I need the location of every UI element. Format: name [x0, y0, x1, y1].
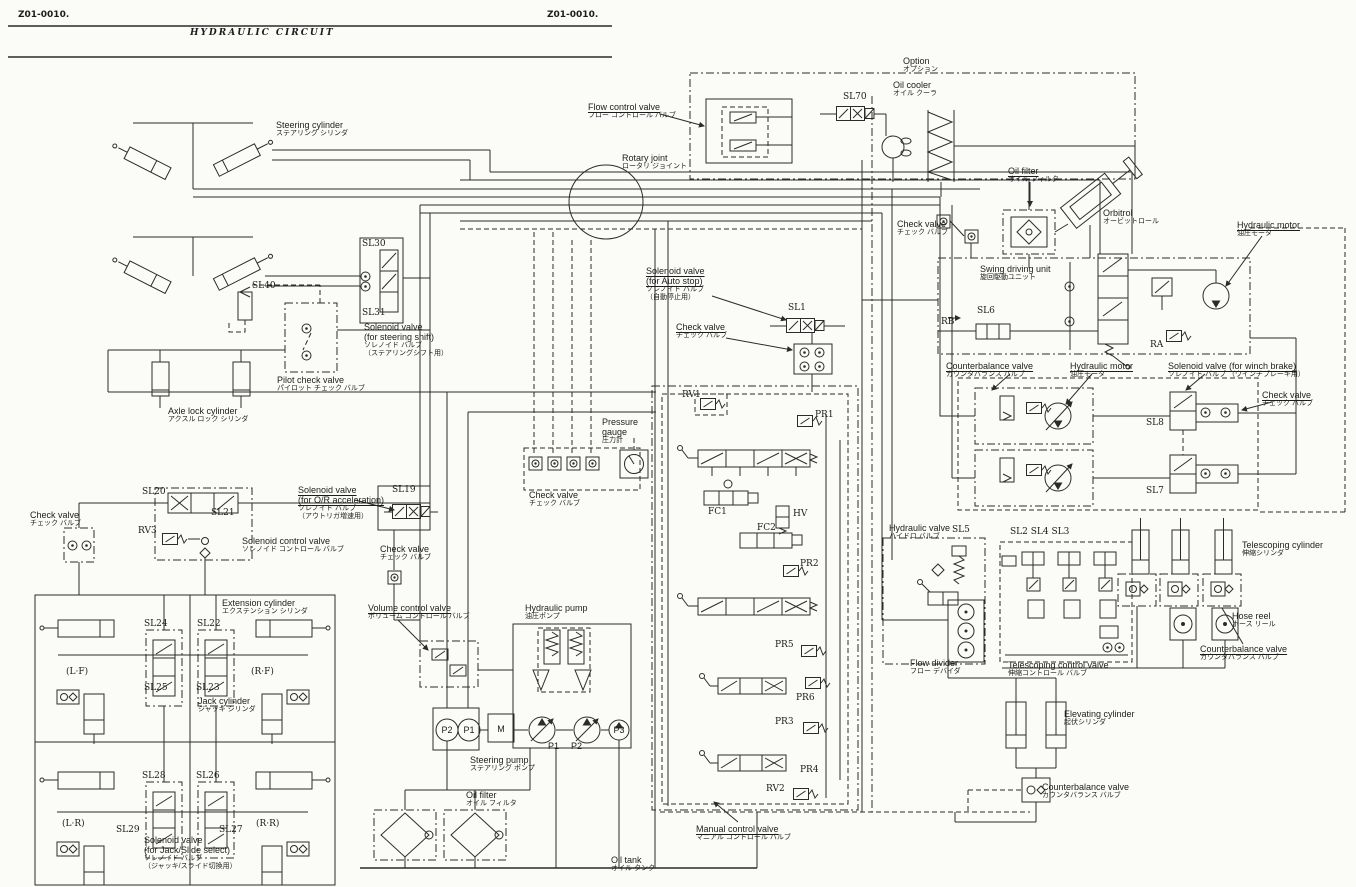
jack-cylinder-label: Jack cylinderジャッキ シリンダ — [198, 696, 256, 714]
hydraulic-circuit-page: Z01-0010.Z01-0010.HYDRAULIC CIRCUITSteer… — [0, 0, 1356, 887]
sl40-label: SL40 — [252, 281, 276, 291]
check-valve-top-label: Check valveチェック バルブ — [897, 219, 948, 237]
steering-cylinders — [110, 123, 276, 293]
spool-row-4 — [700, 751, 787, 772]
check-valve-left-label: Check valveチェック バルブ — [30, 510, 81, 528]
counterbalance-right-label: Counterbalance valveカウンタバランス バルブ — [1200, 644, 1287, 662]
sl23-label: SL23 — [196, 683, 220, 693]
volume-control-valve-label: Volume control valveボリューム コントロール バルブ — [368, 603, 470, 621]
solenoid-auto-stop-label: Solenoid valve(for Auto stop)ソレノイド バルブ（自… — [646, 266, 705, 302]
solenoid-jack-slide-label: Solenoid valve(for Jack/Slide select)ソレノ… — [144, 835, 237, 871]
check-valve-mid-label: Check valveチェック バルブ — [676, 322, 727, 340]
solenoid-winch-label: Solenoid valve (for winch brake)ソレノイド バル… — [1168, 361, 1305, 379]
oil-tank-label: Oil tankオイル タンク — [611, 855, 655, 873]
sl20-label: SL20 — [142, 487, 166, 497]
rv2-label: RV2 — [766, 784, 785, 794]
spool-row-2 — [678, 594, 818, 616]
sl2-sl4-sl3-label: SL2 SL4 SL3 — [1010, 527, 1069, 537]
sl21-label: SL21 — [211, 508, 235, 518]
manual-control-valve-bank — [652, 386, 858, 810]
sl8-label: SL8 — [1146, 418, 1164, 428]
hydraulic-valve-label: Hydraulic valveハイドロ バルブ — [889, 523, 950, 541]
sl28-label: SL28 — [142, 771, 166, 781]
check-valve-right-label: Check valveチェック バルブ — [1262, 390, 1313, 408]
sl5-label: SL5 — [952, 525, 970, 535]
extension-cylinder-label: Extension cylinderエクステンション シリンダ — [222, 598, 308, 616]
counterbalance-top-label: Counterbalance valveカウンタバランス バルブ — [946, 361, 1033, 379]
sl19-label: SL19 — [392, 485, 416, 495]
manual-control-valve-label: Manual control valveマニアル コントロール バルブ — [696, 824, 791, 842]
sl1-auto-stop-valve — [770, 319, 845, 393]
pr5-label: PR5 — [775, 640, 794, 650]
spool-row-1 — [678, 446, 818, 477]
solenoid-or-accel-label: Solenoid valve(for O/R acceleration)ソレノイ… — [298, 485, 384, 521]
pr4-label: PR4 — [800, 765, 819, 775]
telescoping-control-valve — [1000, 542, 1132, 662]
solenoid-steering-shift-label: Solenoid valve(for steering shift)ソレノイド … — [364, 322, 448, 358]
schematic-linework — [0, 0, 1356, 887]
p2-pump-label: P2 — [571, 741, 582, 751]
swing-driving-unit — [862, 225, 1250, 369]
hose-reel-label: Hose reelホース リール — [1232, 611, 1276, 629]
pilot-check-valve-label: Pilot check valveパイロット チェック バルブ — [277, 375, 365, 393]
oil-filter-top — [1003, 180, 1055, 268]
fc2-label: FC2 — [757, 523, 776, 533]
rotary-joint-label: Rotary jointロータリ ジョイント — [622, 153, 687, 171]
ra-label: RA — [1150, 340, 1163, 350]
option-label: Optionオプション — [903, 56, 938, 74]
rotary-joint — [569, 165, 643, 239]
steering-pump-unit — [433, 708, 514, 790]
fc1-label: FC1 — [708, 507, 727, 517]
elevating-cylinder-label: Elevating cylinder起伏シリンダ — [1064, 709, 1135, 727]
pr2-label: PR2 — [800, 559, 819, 569]
oil-cooler-label: Oil coolerオイル クーラ — [893, 80, 937, 98]
page-title: HYDRAULIC CIRCUIT — [190, 28, 335, 38]
p3-pump-label: P3 — [613, 725, 624, 735]
check-valve-gauge-label: Check valveチェック バルブ — [529, 490, 580, 508]
spool-row-3 — [700, 674, 787, 695]
sl40-valve — [229, 287, 252, 332]
oil-filter-bottom-label: Oil filterオイル フィルタ — [466, 790, 517, 808]
steering-pump-label: Steering pumpステアリング ポンプ — [470, 755, 535, 773]
telescoping-control-valve-label: Telescoping control valve伸縮コントロール バルブ — [1008, 660, 1109, 678]
flow-divider-label: Flow dividerフロー デバイダ — [910, 658, 961, 676]
doc-no-left: Z01-0010. — [18, 10, 69, 20]
orbitrol-label: Orbitrolオービットロール — [1103, 208, 1159, 226]
lf-label: (L·F) — [66, 667, 88, 677]
sl1-label: SL1 — [788, 303, 806, 313]
lr-label: (L·R) — [62, 819, 85, 829]
rr-label: (R·R) — [256, 819, 279, 829]
flow-control-valve-label: Flow control valveフロー コントロール バルブ — [588, 102, 676, 120]
pr1-label: PR1 — [815, 410, 834, 420]
pr3-label: PR3 — [775, 717, 794, 727]
steering-cylinder-label: Steering cylinderステアリング シリンダ — [276, 120, 348, 138]
sl27-label: SL27 — [219, 825, 243, 835]
doc-no-right: Z01-0010. — [547, 10, 598, 20]
axle-lock-cylinder-label: Axle lock cylinderアクスル ロック シリンダ — [168, 406, 248, 424]
sl7-label: SL7 — [1146, 486, 1164, 496]
axle-lock-cylinders — [108, 350, 285, 408]
oil-filter-top-label: Oil filterオイル フィルタ — [1008, 166, 1059, 184]
sl29-label: SL29 — [116, 825, 140, 835]
sl6-label: SL6 — [977, 306, 995, 316]
hydraulic-pump-label: Hydraulic pump油圧ポンプ — [525, 603, 588, 621]
rv1-label: RV1 — [682, 390, 701, 400]
m-label: M — [497, 724, 505, 734]
sl31-label: SL31 — [362, 308, 386, 318]
check-valve-sl19-label: Check valveチェック バルブ — [380, 544, 431, 562]
volume-control-valve — [420, 641, 513, 687]
steering-shift-valve — [265, 213, 430, 323]
hydraulic-motor-top-label: Hydraulic motor油圧モータ — [1237, 220, 1300, 238]
p2-steering-label: P2 — [441, 725, 452, 735]
pressure-gauge-check-manifold — [524, 232, 648, 490]
piping — [108, 96, 1345, 868]
p1-pump-label: P1 — [548, 741, 559, 751]
flow-divider-hydraulic-valve — [882, 538, 985, 664]
sl25-label: SL25 — [144, 683, 168, 693]
counterbalance-bottom-label: Counterbalance valveカウンタバランス バルブ — [1042, 782, 1129, 800]
sl26-label: SL26 — [196, 771, 220, 781]
telescoping-cylinder-label: Telescoping cylinder伸縮シリンダ — [1242, 540, 1323, 558]
hv-label: HV — [793, 509, 807, 519]
rf-label: (R·F) — [251, 667, 274, 677]
pr6-label: PR6 — [796, 693, 815, 703]
rv3-label: RV3 — [138, 526, 157, 536]
hydraulic-motor-mid-label: Hydraulic motor油圧モータ — [1070, 361, 1133, 379]
sl24-label: SL24 — [144, 619, 168, 629]
rb-label: RB — [941, 317, 954, 327]
sl70-label: SL70 — [843, 92, 867, 102]
swing-driving-unit-label: Swing driving unit旋回駆動ユニット — [980, 264, 1051, 282]
p1-steering-label: P1 — [463, 725, 474, 735]
pressure-gauge-label: Pressuregauge圧力計 — [602, 417, 638, 445]
solenoid-control-valve-label: Solenoid control valveソレノイド コントロール バルブ — [242, 536, 344, 554]
sl22-label: SL22 — [197, 619, 221, 629]
sl30-label: SL30 — [362, 239, 386, 249]
